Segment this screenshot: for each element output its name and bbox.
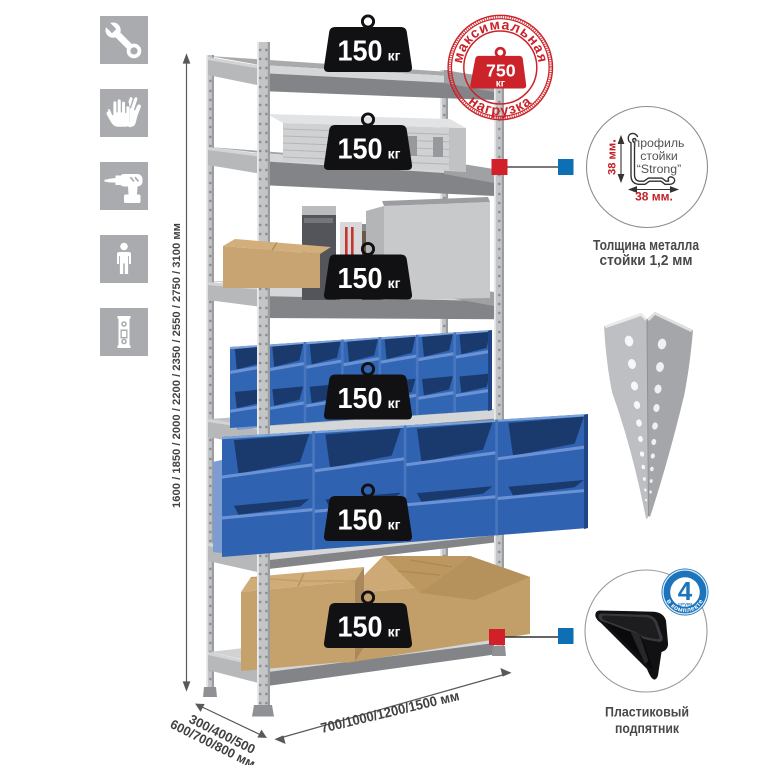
svg-text:38 мм.: 38 мм. bbox=[635, 190, 673, 204]
svg-text:750: 750 bbox=[486, 61, 516, 81]
svg-text:кг: кг bbox=[388, 517, 401, 533]
svg-text:профиль: профиль bbox=[634, 136, 685, 150]
svg-text:подпятник: подпятник bbox=[615, 720, 680, 736]
svg-text:Пластиковый: Пластиковый bbox=[605, 704, 689, 720]
svg-text:кг: кг bbox=[496, 79, 505, 90]
svg-text:150: 150 bbox=[338, 383, 383, 415]
svg-text:штуки: штуки bbox=[678, 602, 692, 607]
svg-text:стойки: стойки bbox=[640, 149, 678, 163]
svg-text:150: 150 bbox=[338, 505, 383, 537]
svg-text:кг: кг bbox=[388, 395, 401, 411]
svg-text:150: 150 bbox=[338, 263, 383, 295]
svg-text:1600 / 1850 / 2000 / 2200 / 23: 1600 / 1850 / 2000 / 2200 / 2350 / 2550 … bbox=[171, 223, 183, 508]
svg-text:стойки 1,2 мм: стойки 1,2 мм bbox=[600, 252, 693, 269]
svg-text:кг: кг bbox=[388, 48, 401, 64]
svg-text:кг: кг bbox=[388, 146, 401, 162]
svg-text:кг: кг bbox=[388, 275, 401, 291]
svg-text:“Strong”: “Strong” bbox=[637, 162, 681, 176]
svg-text:150: 150 bbox=[338, 612, 383, 644]
svg-text:150: 150 bbox=[338, 134, 383, 166]
svg-text:150: 150 bbox=[338, 36, 383, 68]
svg-text:кг: кг bbox=[388, 624, 401, 640]
